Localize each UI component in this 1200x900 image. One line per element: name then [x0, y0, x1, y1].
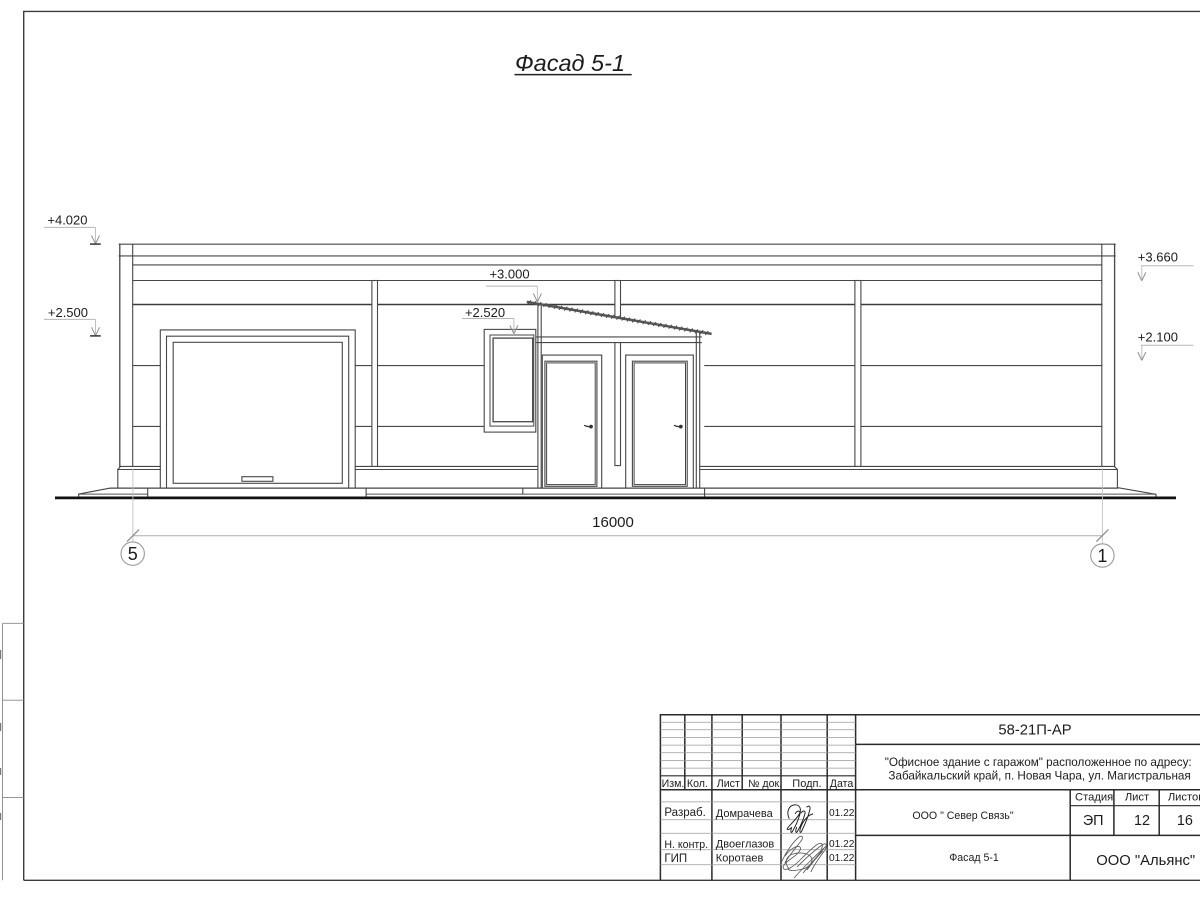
svg-text:Разраб.: Разраб.	[664, 807, 705, 819]
svg-text:Лист: Лист	[1125, 792, 1149, 804]
svg-text:Коротаев: Коротаев	[716, 853, 764, 865]
svg-text:"Офисное здание с гаражом" рас: "Офисное здание с гаражом" расположенное…	[885, 756, 1192, 769]
svg-text:Лист: Лист	[717, 778, 740, 790]
svg-text:+2.100: +2.100	[1138, 330, 1178, 345]
svg-text:Фасад 5-1: Фасад 5-1	[515, 50, 625, 76]
svg-text:58-21П-АР: 58-21П-АР	[998, 723, 1071, 739]
svg-text:№ док.: № док.	[748, 778, 782, 790]
svg-text:Подп.: Подп.	[792, 778, 821, 790]
svg-text:ООО " Север Связь": ООО " Север Связь"	[912, 810, 1013, 822]
svg-text:16: 16	[1177, 813, 1193, 829]
svg-text:+2.520: +2.520	[465, 305, 505, 320]
svg-text:Листов: Листов	[1168, 792, 1200, 804]
svg-text:Забайкальский край, п. Новая Ч: Забайкальский край, п. Новая Чара, ул. М…	[888, 769, 1190, 782]
svg-text:Домрачева: Домрачева	[716, 808, 774, 820]
svg-text:+3.000: +3.000	[489, 267, 529, 282]
svg-text:16000: 16000	[592, 514, 634, 531]
svg-text:Изм.: Изм.	[662, 778, 685, 790]
svg-text:01.22: 01.22	[829, 853, 855, 864]
svg-text:Стадия: Стадия	[1075, 792, 1113, 804]
svg-text:+4.020: +4.020	[47, 213, 87, 228]
svg-text:Дата: Дата	[830, 778, 854, 790]
svg-text:01.22: 01.22	[829, 808, 855, 819]
svg-text:Двоеглазов: Двоеглазов	[716, 839, 775, 851]
svg-text:01.22: 01.22	[829, 839, 855, 850]
svg-text:ООО "Альянс": ООО "Альянс"	[1096, 853, 1195, 869]
svg-text:Фасад 5-1: Фасад 5-1	[949, 852, 999, 864]
svg-text:ГИП: ГИП	[664, 853, 687, 865]
svg-text:Н. контр.: Н. контр.	[664, 839, 708, 851]
svg-text:1: 1	[1097, 546, 1107, 566]
svg-text:12: 12	[1134, 813, 1150, 829]
svg-text:5: 5	[128, 544, 138, 564]
svg-text:Кол.: Кол.	[687, 778, 708, 790]
svg-text:ЭП: ЭП	[1083, 813, 1104, 829]
svg-text:+3.660: +3.660	[1138, 250, 1178, 265]
svg-text:+2.500: +2.500	[48, 305, 88, 320]
